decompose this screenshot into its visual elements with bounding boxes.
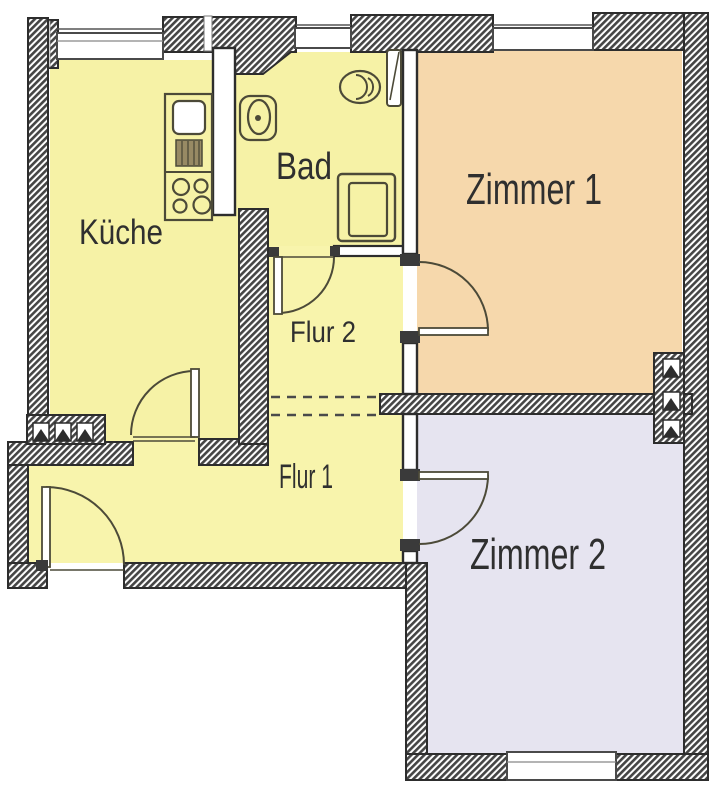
svg-text:Flur 1: Flur 1 — [279, 458, 333, 496]
svg-text:Küche: Küche — [79, 213, 163, 252]
svg-text:Zimmer 1: Zimmer 1 — [466, 165, 602, 214]
svg-text:Flur 2: Flur 2 — [290, 316, 356, 349]
svg-text:Zimmer 2: Zimmer 2 — [470, 530, 606, 579]
svg-text:Bad: Bad — [276, 146, 332, 188]
